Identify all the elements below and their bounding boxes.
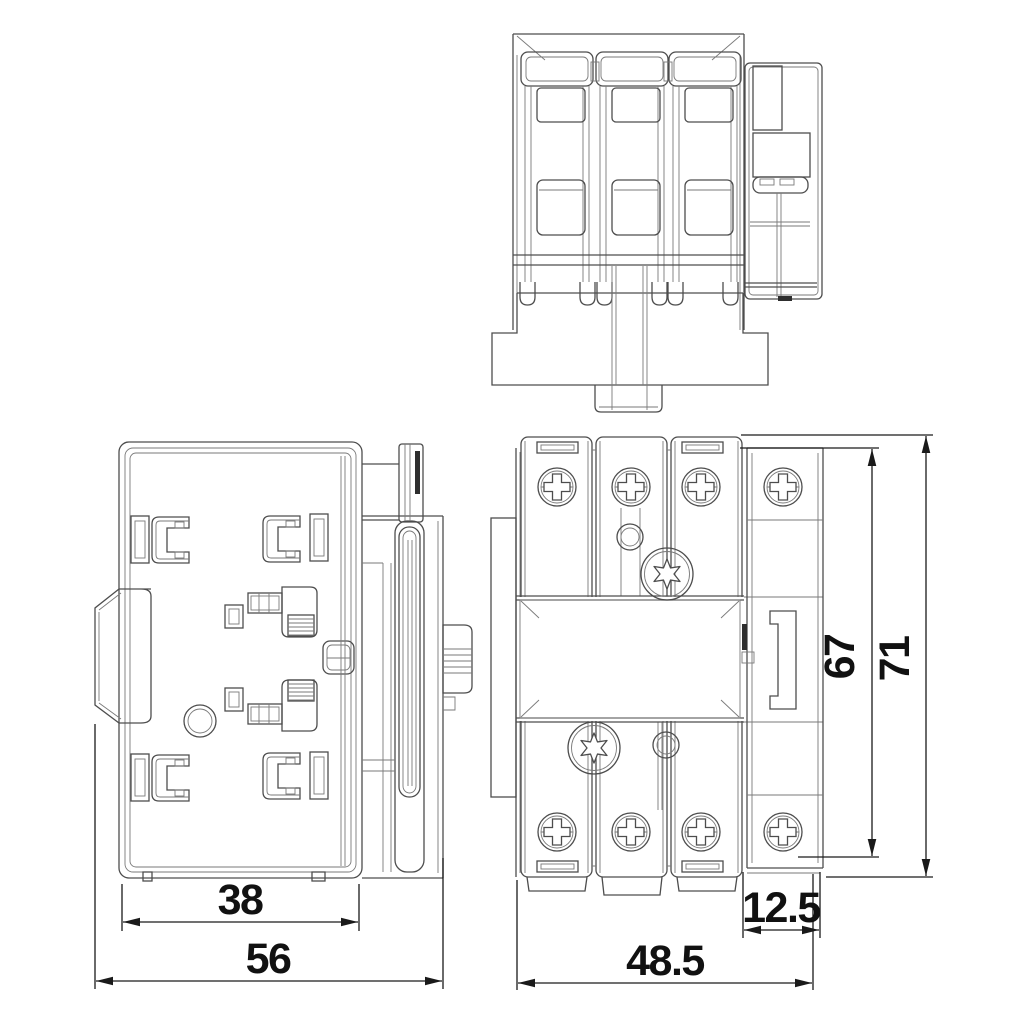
mount-slot-icon [310, 514, 328, 561]
torx-screw-icon [568, 722, 620, 774]
phillips-screw-icon [612, 813, 650, 851]
dimension-front-width-body-label: 48.5 [626, 937, 704, 985]
phillips-screw-icon [682, 468, 720, 506]
dimension-front-width-din: 12.5 [742, 872, 820, 938]
terminal-slot-icon [682, 861, 723, 872]
snap-clip-icon [263, 753, 300, 799]
dimension-front-width-din-label: 12.5 [742, 884, 820, 932]
drawing-canvas: 38 56 48.5 12.5 67 [0, 0, 1024, 1024]
terminal-slot-icon [537, 861, 578, 872]
dimension-front-height-inner-label: 67 [816, 634, 864, 679]
dimension-front-height-total-label: 71 [871, 636, 919, 681]
dimension-back-width-total-label: 56 [246, 935, 291, 983]
terminal-slot-icon [682, 442, 723, 453]
side-view [492, 34, 822, 412]
phillips-screw-icon [764, 813, 802, 851]
snap-clip-icon [263, 516, 300, 562]
phillips-screw-icon [764, 468, 802, 506]
mount-slot-icon [131, 754, 149, 801]
phillips-screw-icon [612, 468, 650, 506]
mount-slot-icon [131, 516, 149, 563]
phillips-screw-icon [538, 813, 576, 851]
technical-drawing-svg: 38 56 48.5 12.5 67 [0, 0, 1024, 1024]
phillips-screw-icon [538, 468, 576, 506]
snap-clip-icon [152, 517, 189, 563]
dimension-front-height-inner: 67 [740, 448, 879, 857]
snap-clip-icon [152, 755, 189, 801]
front-view [491, 437, 823, 895]
dimension-back-width-inner: 38 [122, 876, 359, 931]
dimension-back-width-inner-label: 38 [218, 876, 263, 924]
phillips-screw-icon [682, 813, 720, 851]
mount-slot-icon [310, 752, 328, 799]
terminal-slot-icon [537, 442, 578, 453]
back-view [95, 442, 472, 881]
